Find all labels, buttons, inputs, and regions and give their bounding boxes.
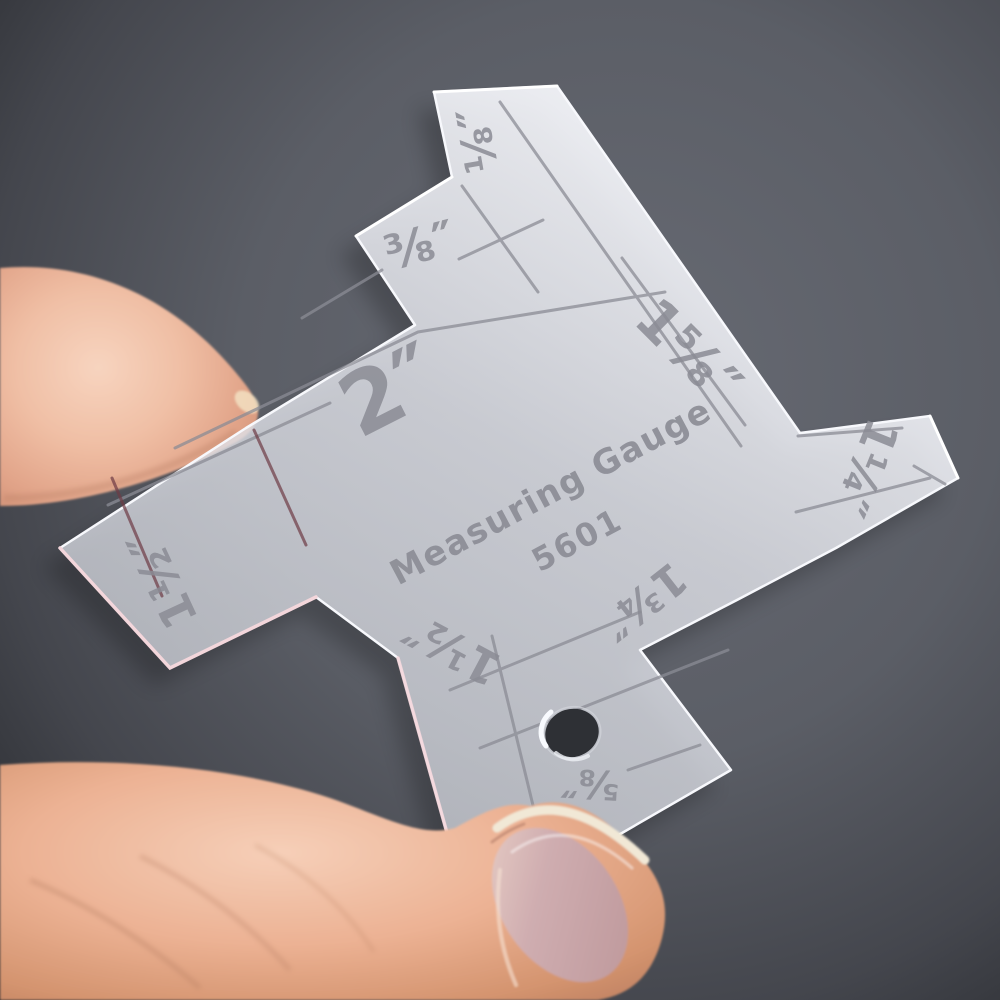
scene-photo: ⅛″ ⅜″ 2″ 1⅝″ 1¼″ 1½″ 1½″ 1¾″ ⅝″ Measurin… (0, 0, 1000, 1000)
marking-five-eighths-inch: ⅝″ (559, 758, 621, 807)
